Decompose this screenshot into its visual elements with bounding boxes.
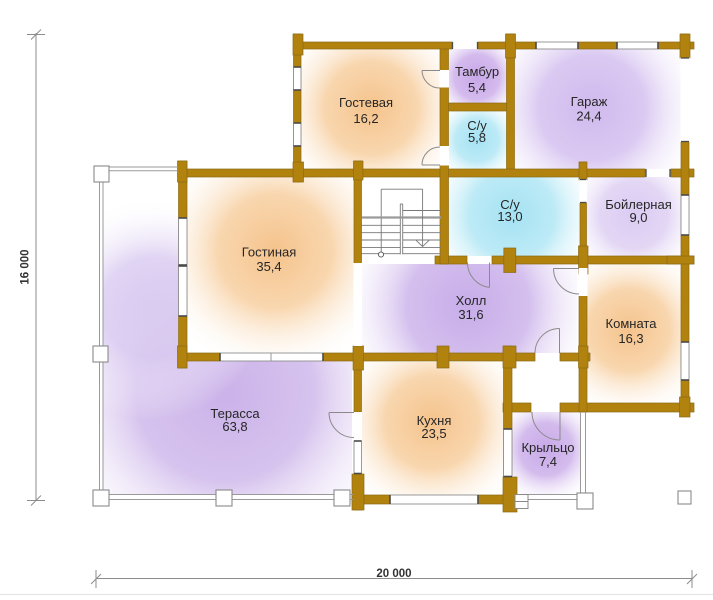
svg-text:Крыльцо: Крыльцо <box>521 440 574 455</box>
svg-text:20 000: 20 000 <box>376 568 411 580</box>
svg-text:13,0: 13,0 <box>497 209 522 224</box>
svg-text:Холл: Холл <box>456 293 487 308</box>
svg-text:63,8: 63,8 <box>222 419 247 434</box>
svg-text:Гостевая: Гостевая <box>339 95 393 110</box>
svg-text:Тамбур: Тамбур <box>455 64 499 79</box>
svg-text:16 000: 16 000 <box>20 249 32 284</box>
svg-text:9,0: 9,0 <box>629 210 647 225</box>
svg-text:Гараж: Гараж <box>571 94 608 109</box>
svg-text:7,4: 7,4 <box>539 454 557 469</box>
svg-text:Гостиная: Гостиная <box>242 245 297 260</box>
svg-text:5,8: 5,8 <box>468 130 486 145</box>
svg-text:24,4: 24,4 <box>576 109 601 124</box>
svg-text:5,4: 5,4 <box>468 80 486 95</box>
svg-text:Комната: Комната <box>606 316 658 331</box>
svg-text:31,6: 31,6 <box>458 307 483 322</box>
svg-text:16,2: 16,2 <box>353 111 378 126</box>
svg-text:16,3: 16,3 <box>618 331 643 346</box>
svg-text:23,5: 23,5 <box>421 426 446 441</box>
svg-text:35,4: 35,4 <box>256 259 281 274</box>
